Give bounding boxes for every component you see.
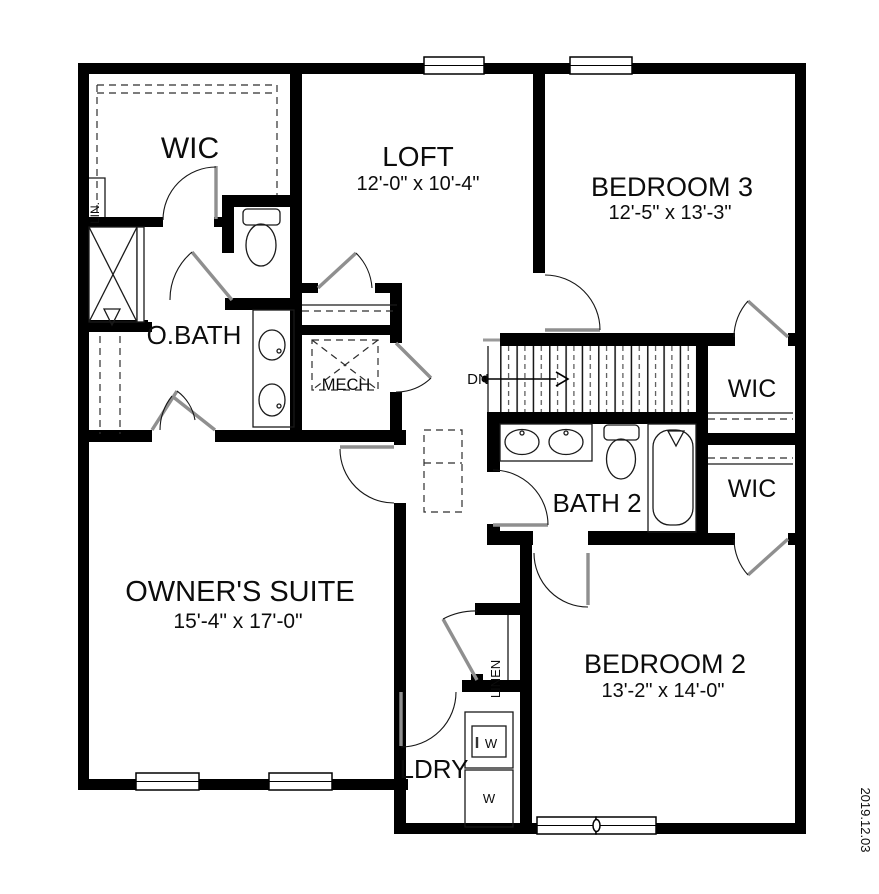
room-label-loft: LOFT [382, 141, 454, 172]
wall-exterior-left [78, 63, 89, 790]
room-dims-loft: 12'-0" x 10'-4" [356, 173, 479, 195]
door-arc [545, 275, 600, 330]
room-dims-owners-suite: 15'-4" x 17'-0" [173, 610, 302, 633]
floor-plan-svg: WIC LOFT 12'-0" x 10'-4" BEDROOM 3 12'-5… [0, 0, 879, 894]
room-label-bath2: BATH 2 [552, 488, 641, 518]
date-stamp: 2019.12.03 [858, 787, 873, 852]
wall-hallcloset-bottom [302, 325, 397, 335]
door-arc [534, 553, 588, 607]
obath-vanity-fixture [253, 310, 294, 427]
window [269, 773, 332, 790]
attic-access-dashed [424, 430, 462, 512]
door-mech [396, 343, 431, 378]
door-wic-right-upper [748, 301, 788, 337]
labels: WIC LOFT 12'-0" x 10'-4" BEDROOM 3 12'-5… [88, 132, 873, 853]
room-label-lin-closet: LIN. [88, 202, 102, 224]
door-arc [734, 539, 748, 575]
shower-fixture [89, 227, 144, 325]
wall-wc-bottom [225, 298, 302, 310]
stairs [482, 340, 697, 412]
door-water-closet [192, 252, 232, 300]
bath2-vanity-fixture [500, 424, 592, 461]
wall-bath2-bedroom2-b [588, 531, 702, 545]
door-arc [340, 449, 394, 503]
stairs-down-label: DN [467, 371, 489, 388]
room-label-obath: O.BATH [147, 320, 242, 350]
window [424, 57, 484, 74]
door-arc [401, 692, 456, 747]
room-dims-bedroom3: 12'-5" x 13'-3" [608, 202, 731, 224]
sink-fixture [259, 384, 285, 416]
room-label-wic-upper: WIC [161, 132, 219, 165]
door-arc [734, 301, 748, 337]
door-arc [170, 252, 192, 300]
wall-wc-left [222, 195, 234, 253]
door-wic-right-lower [748, 539, 788, 575]
wall-mech-right-a [390, 283, 402, 343]
wall-obath-owners-b [215, 430, 406, 442]
wall-wic-divider [696, 433, 795, 445]
wall-hallcloset-top-a [302, 283, 318, 293]
door-arc [356, 253, 372, 288]
wall-owners-right [394, 503, 406, 834]
wall-exterior-right [795, 63, 806, 834]
room-label-owners-suite: OWNER'S SUITE [125, 576, 355, 608]
door-arc [396, 378, 431, 392]
door-linen [443, 619, 477, 680]
toilet-fixture [243, 209, 280, 266]
window-mulled [537, 817, 656, 834]
room-label-bedroom3: BEDROOM 3 [591, 172, 753, 202]
wall-stairs-top-b [788, 333, 803, 346]
wall-exterior-bottom-owners [78, 779, 408, 790]
room-label-bedroom2: BEDROOM 2 [584, 649, 746, 679]
window [136, 773, 199, 790]
tub-faucet-icon [668, 431, 684, 446]
floor-plan-page: WIC LOFT 12'-0" x 10'-4" BEDROOM 3 12'-5… [0, 0, 879, 894]
wall-obath-owners-a [78, 430, 152, 442]
door-arc [163, 167, 216, 220]
dryer-label: W [483, 791, 496, 806]
door-hall-closet [318, 253, 356, 288]
sink-fixture [505, 430, 539, 455]
wall-wic-loft [290, 74, 302, 442]
door-arc [443, 611, 477, 619]
room-label-mech: MECH [322, 376, 371, 394]
room-label-wic-right-lower: WIC [728, 475, 777, 503]
wall-bedroom3-left [533, 63, 545, 273]
room-dims-bedroom2: 13'-2" x 14'-0" [601, 680, 724, 702]
toilet-fixture [604, 425, 639, 479]
tub-fixture [648, 424, 696, 532]
room-label-wic-right-upper: WIC [728, 375, 777, 403]
room-label-linen: LINEN [488, 660, 503, 698]
room-label-laundry: LDRY [400, 754, 469, 784]
wall-linen-top [475, 603, 532, 615]
wall-mech-right-b [390, 392, 402, 430]
sink-fixture [259, 330, 285, 360]
window [570, 57, 632, 74]
washer-label: W [485, 736, 498, 751]
sink-fixture [549, 430, 583, 455]
door-arc [493, 470, 548, 525]
wall-wiclower-bottom-b [788, 533, 803, 545]
wall-owners-right-stub [394, 430, 406, 445]
wall-stairs-bottom [487, 412, 708, 424]
